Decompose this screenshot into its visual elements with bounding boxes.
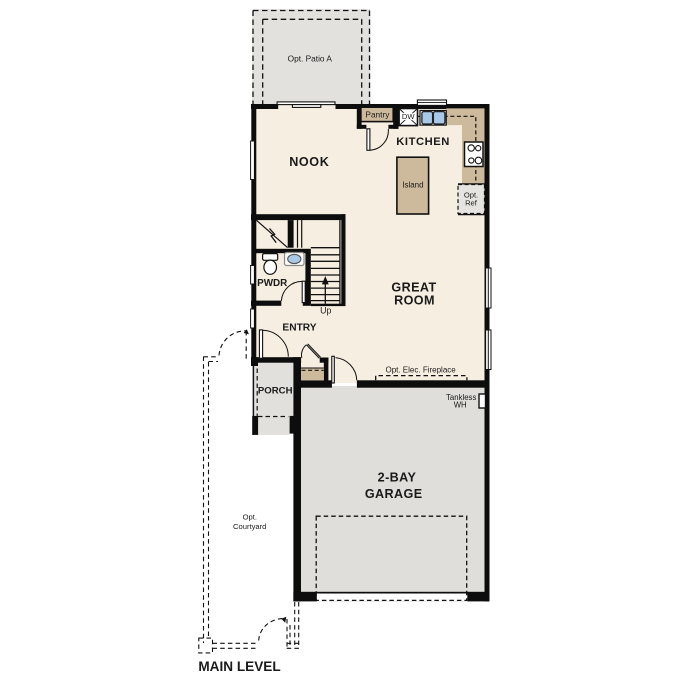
svg-text:KITCHEN: KITCHEN bbox=[396, 136, 450, 148]
svg-text:Up: Up bbox=[320, 305, 331, 315]
svg-text:Island: Island bbox=[402, 180, 423, 189]
svg-text:GREAT: GREAT bbox=[391, 281, 436, 295]
svg-text:GARAGE: GARAGE bbox=[365, 487, 423, 501]
svg-text:DW: DW bbox=[402, 112, 415, 121]
svg-text:Courtyard: Courtyard bbox=[233, 522, 266, 531]
svg-text:2-BAY: 2-BAY bbox=[378, 471, 417, 485]
svg-text:ENTRY: ENTRY bbox=[282, 322, 316, 333]
svg-text:Opt. Patio A: Opt. Patio A bbox=[288, 54, 333, 64]
svg-text:WH: WH bbox=[454, 401, 467, 410]
svg-text:MAIN LEVEL: MAIN LEVEL bbox=[198, 659, 280, 674]
svg-text:Pantry: Pantry bbox=[365, 109, 390, 119]
svg-text:NOOK: NOOK bbox=[289, 155, 329, 169]
svg-text:Opt. Elec. Fireplace: Opt. Elec. Fireplace bbox=[385, 366, 456, 375]
svg-text:ROOM: ROOM bbox=[394, 294, 435, 308]
svg-text:PORCH: PORCH bbox=[258, 386, 293, 397]
svg-text:Opt.: Opt. bbox=[243, 513, 257, 522]
svg-text:PWDR: PWDR bbox=[257, 278, 287, 289]
svg-text:Ref: Ref bbox=[465, 199, 478, 208]
